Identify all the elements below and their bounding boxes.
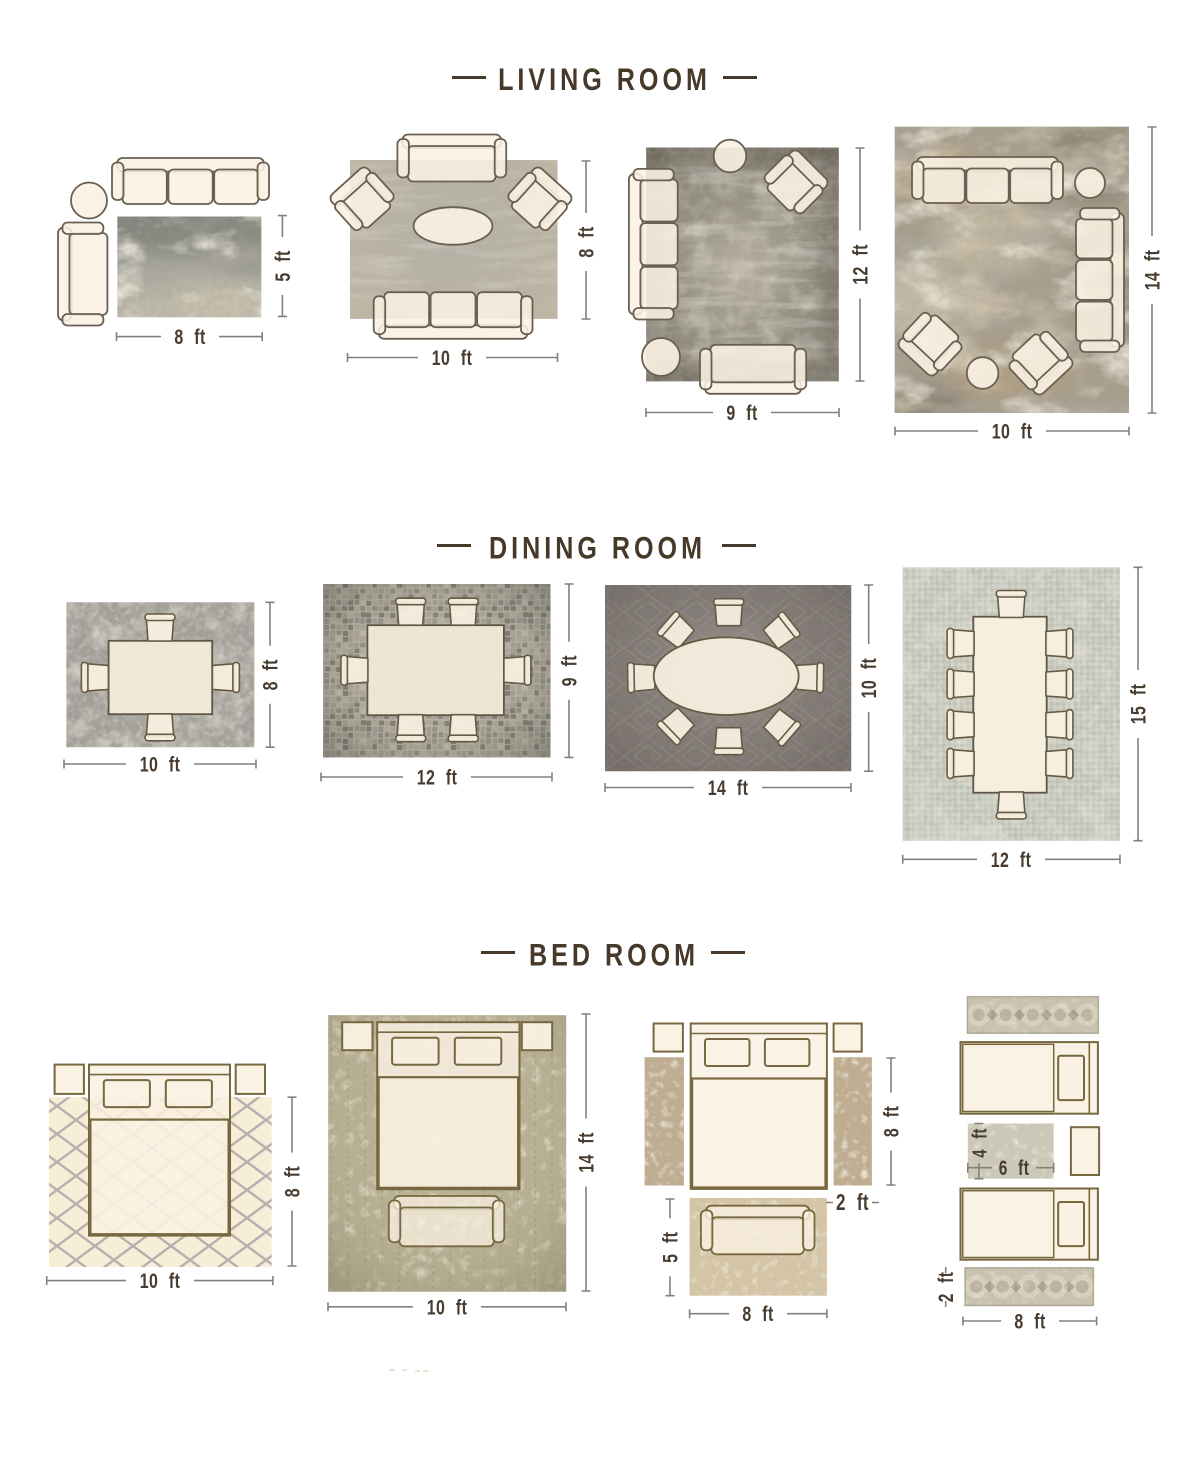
svg-text:14 ft: 14 ft	[575, 1132, 599, 1173]
svg-text:2 ft: 2 ft	[836, 1191, 869, 1216]
svg-text:12 ft: 12 ft	[417, 766, 458, 790]
svg-text:12 ft: 12 ft	[991, 849, 1032, 873]
svg-text:10 ft: 10 ft	[140, 753, 181, 777]
svg-text:8 ft: 8 ft	[281, 1166, 305, 1197]
svg-text:4 ft: 4 ft	[968, 1128, 991, 1158]
svg-text:8 ft: 8 ft	[742, 1303, 773, 1327]
svg-text:8 ft: 8 ft	[1014, 1310, 1045, 1334]
svg-text:LIVING ROOM: LIVING ROOM	[498, 62, 711, 97]
svg-text:8 ft: 8 ft	[575, 226, 599, 257]
svg-text:8 ft: 8 ft	[880, 1106, 904, 1137]
svg-text:14 ft: 14 ft	[708, 777, 749, 801]
svg-text:BED ROOM: BED ROOM	[529, 938, 699, 973]
svg-text:10 ft: 10 ft	[140, 1270, 181, 1294]
svg-text:5 ft: 5 ft	[659, 1231, 683, 1262]
svg-text:12 ft: 12 ft	[849, 244, 873, 285]
svg-text:9 ft: 9 ft	[558, 655, 582, 686]
svg-text:14 ft: 14 ft	[1141, 250, 1165, 291]
svg-text:DINING ROOM: DINING ROOM	[489, 531, 706, 566]
svg-text:9 ft: 9 ft	[726, 402, 757, 426]
svg-text:8 ft: 8 ft	[174, 326, 205, 350]
svg-text:10 ft: 10 ft	[992, 420, 1033, 444]
svg-text:10 ft: 10 ft	[432, 347, 473, 371]
svg-text:10 ft: 10 ft	[858, 658, 882, 699]
svg-text:6 ft: 6 ft	[999, 1156, 1029, 1180]
svg-text:15 ft: 15 ft	[1127, 684, 1151, 725]
svg-text:5 ft: 5 ft	[272, 250, 296, 281]
svg-text:10 ft: 10 ft	[427, 1296, 468, 1320]
svg-text:2 ft: 2 ft	[934, 1272, 958, 1302]
svg-text:8 ft: 8 ft	[259, 659, 283, 690]
